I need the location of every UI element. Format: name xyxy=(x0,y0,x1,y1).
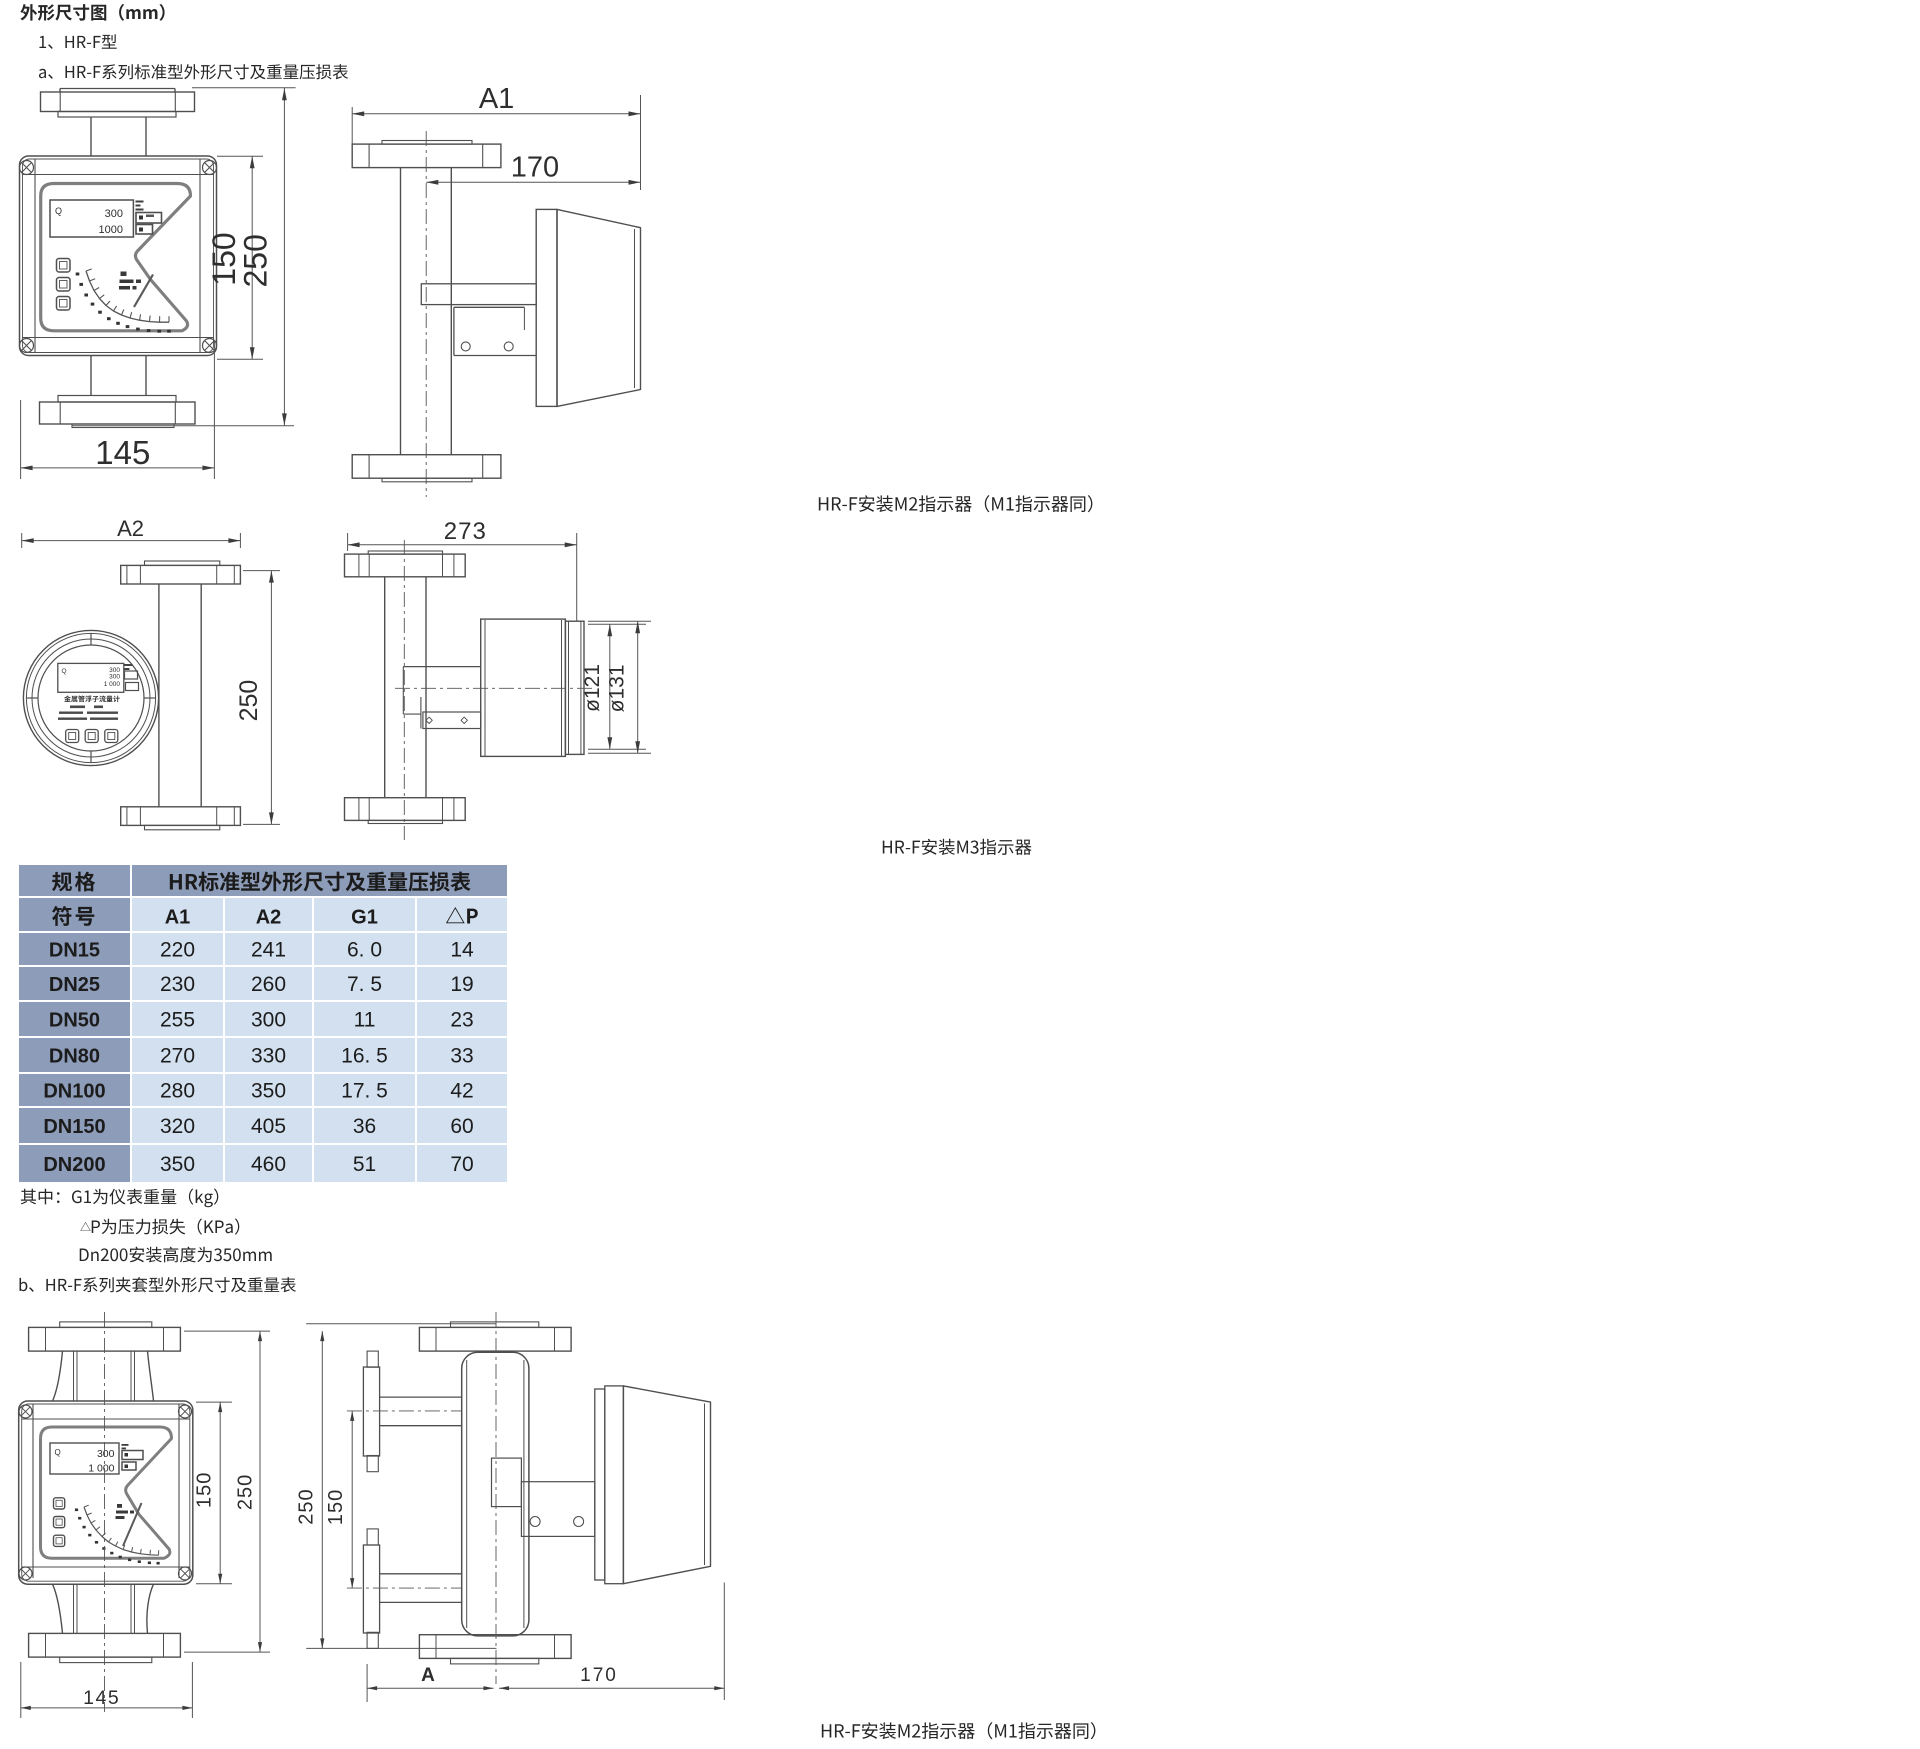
svg-text:220: 220 xyxy=(160,939,195,962)
svg-text:145: 145 xyxy=(83,1687,120,1709)
svg-text:230: 230 xyxy=(160,973,195,996)
svg-text:350: 350 xyxy=(251,1080,286,1103)
svg-text:ø131: ø131 xyxy=(606,664,629,712)
svg-text:150: 150 xyxy=(193,1472,215,1508)
svg-text:33: 33 xyxy=(450,1045,473,1068)
svg-text:270: 270 xyxy=(160,1045,195,1068)
svg-text:300: 300 xyxy=(109,674,120,681)
svg-text:ø121: ø121 xyxy=(581,664,604,712)
svg-text:A2: A2 xyxy=(117,516,144,541)
svg-text:280: 280 xyxy=(160,1080,195,1103)
svg-text:60: 60 xyxy=(450,1115,473,1138)
svg-text:150: 150 xyxy=(206,232,242,285)
svg-text:Q: Q xyxy=(62,668,67,675)
svg-text:A: A xyxy=(421,1665,435,1686)
svg-text:260: 260 xyxy=(251,973,286,996)
svg-text:1 000: 1 000 xyxy=(104,681,121,688)
svg-text:330: 330 xyxy=(251,1045,286,1068)
svg-text:320: 320 xyxy=(160,1115,195,1138)
svg-text:16. 5: 16. 5 xyxy=(341,1045,388,1068)
svg-text:250: 250 xyxy=(296,1488,318,1524)
svg-text:17. 5: 17. 5 xyxy=(341,1080,388,1103)
svg-text:300: 300 xyxy=(97,1448,115,1460)
svg-text:300: 300 xyxy=(251,1009,286,1032)
svg-text:170: 170 xyxy=(580,1665,618,1686)
svg-text:1 000: 1 000 xyxy=(88,1463,114,1475)
svg-text:42: 42 xyxy=(450,1080,473,1103)
svg-text:7. 5: 7. 5 xyxy=(347,973,382,996)
svg-text:DN15: DN15 xyxy=(49,940,100,962)
svg-text:G1: G1 xyxy=(351,907,378,929)
svg-text:1000: 1000 xyxy=(99,224,123,236)
svg-text:273: 273 xyxy=(444,518,487,545)
svg-text:DN50: DN50 xyxy=(49,1010,100,1032)
svg-text:23: 23 xyxy=(450,1009,473,1032)
svg-text:70: 70 xyxy=(450,1153,473,1176)
svg-text:6. 0: 6. 0 xyxy=(347,939,382,962)
svg-text:350: 350 xyxy=(160,1153,195,1176)
svg-text:Q: Q xyxy=(55,206,62,216)
svg-text:11: 11 xyxy=(354,1009,376,1032)
svg-text:250: 250 xyxy=(235,1474,257,1510)
svg-text:250: 250 xyxy=(238,234,274,287)
svg-text:145: 145 xyxy=(95,434,150,471)
svg-text:DN100: DN100 xyxy=(43,1081,105,1103)
svg-text:170: 170 xyxy=(511,152,559,184)
svg-text:36: 36 xyxy=(353,1115,376,1138)
svg-text:250: 250 xyxy=(235,680,263,722)
svg-text:19: 19 xyxy=(450,973,473,996)
svg-text:405: 405 xyxy=(251,1115,286,1138)
svg-text:A1: A1 xyxy=(479,83,514,115)
svg-text:Q: Q xyxy=(55,1448,61,1457)
svg-text:51: 51 xyxy=(353,1153,376,1176)
svg-text:300: 300 xyxy=(105,208,123,220)
svg-text:DN25: DN25 xyxy=(49,974,100,996)
svg-text:DN150: DN150 xyxy=(43,1116,105,1138)
svg-text:255: 255 xyxy=(160,1009,195,1032)
svg-text:241: 241 xyxy=(251,939,286,962)
svg-text:14: 14 xyxy=(450,939,474,962)
svg-text:DN200: DN200 xyxy=(43,1154,105,1176)
svg-text:460: 460 xyxy=(251,1153,286,1176)
svg-text:A2: A2 xyxy=(256,907,282,929)
svg-text:DN80: DN80 xyxy=(49,1046,100,1068)
svg-text:A1: A1 xyxy=(165,907,191,929)
svg-text:150: 150 xyxy=(325,1489,347,1525)
